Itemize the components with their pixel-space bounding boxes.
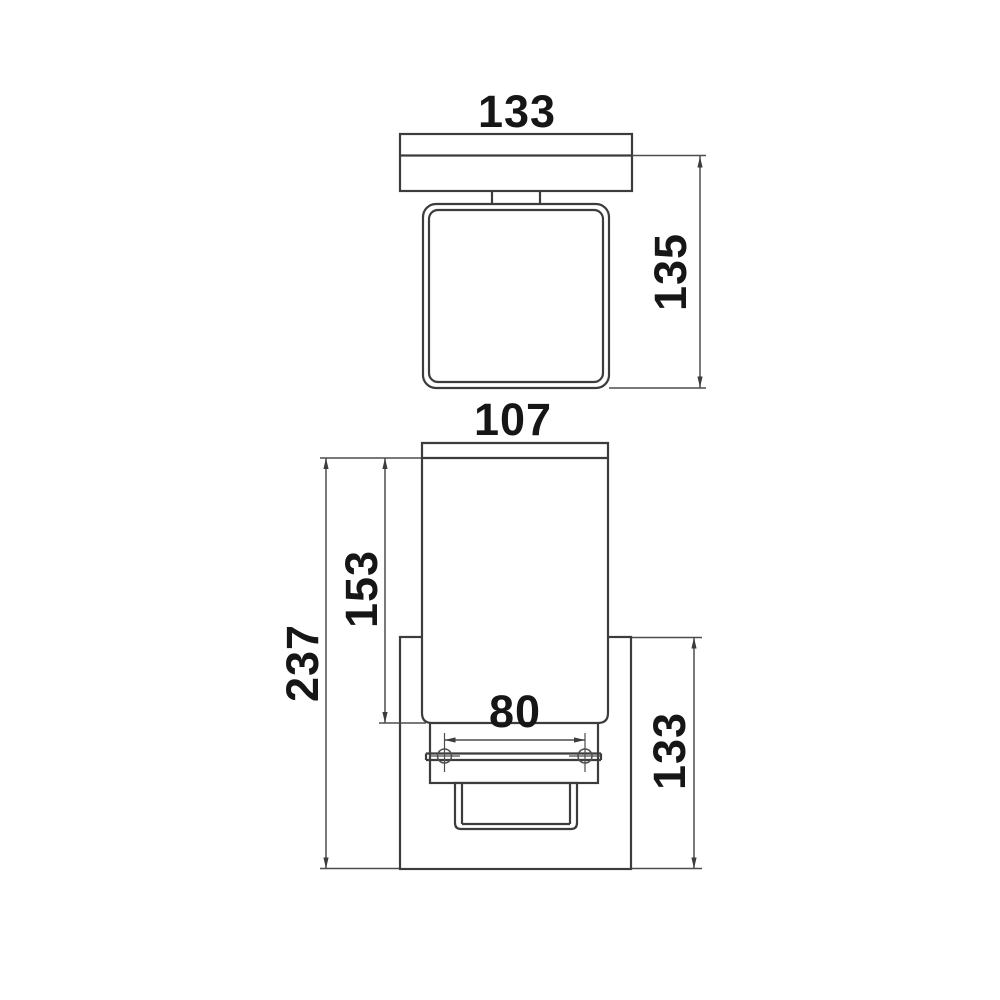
dim-label-shade-height: 153: [336, 550, 387, 628]
drawing-canvas: 133 135 107 237: [0, 0, 1000, 1000]
dim-label-screw-spacing: 80: [489, 686, 541, 737]
dim-label-shade-width: 107: [474, 394, 552, 445]
top-view-shade-outer: [423, 204, 609, 388]
dim-label-overall-height: 237: [277, 624, 328, 702]
arrowhead: [382, 712, 387, 723]
dim-label-plate-width: 133: [478, 86, 556, 137]
top-view-wall-plate: [400, 134, 632, 191]
arrowhead: [697, 377, 702, 388]
dimension-drawing-svg: 133 135 107 237: [0, 0, 1000, 1000]
dim-label-backplate-height: 133: [644, 712, 695, 790]
arrowhead: [323, 858, 328, 869]
arrowhead: [691, 858, 696, 869]
arrowhead: [697, 157, 702, 168]
arrowhead: [382, 458, 387, 469]
top-view: 133 135: [400, 86, 706, 388]
arrowhead: [691, 638, 696, 649]
front-view-socket: [455, 783, 577, 829]
front-view-shade: [422, 443, 608, 723]
front-view: 107 237 153 133 80: [277, 394, 702, 869]
arrowhead: [323, 458, 328, 469]
dim-label-projection: 135: [645, 233, 696, 311]
